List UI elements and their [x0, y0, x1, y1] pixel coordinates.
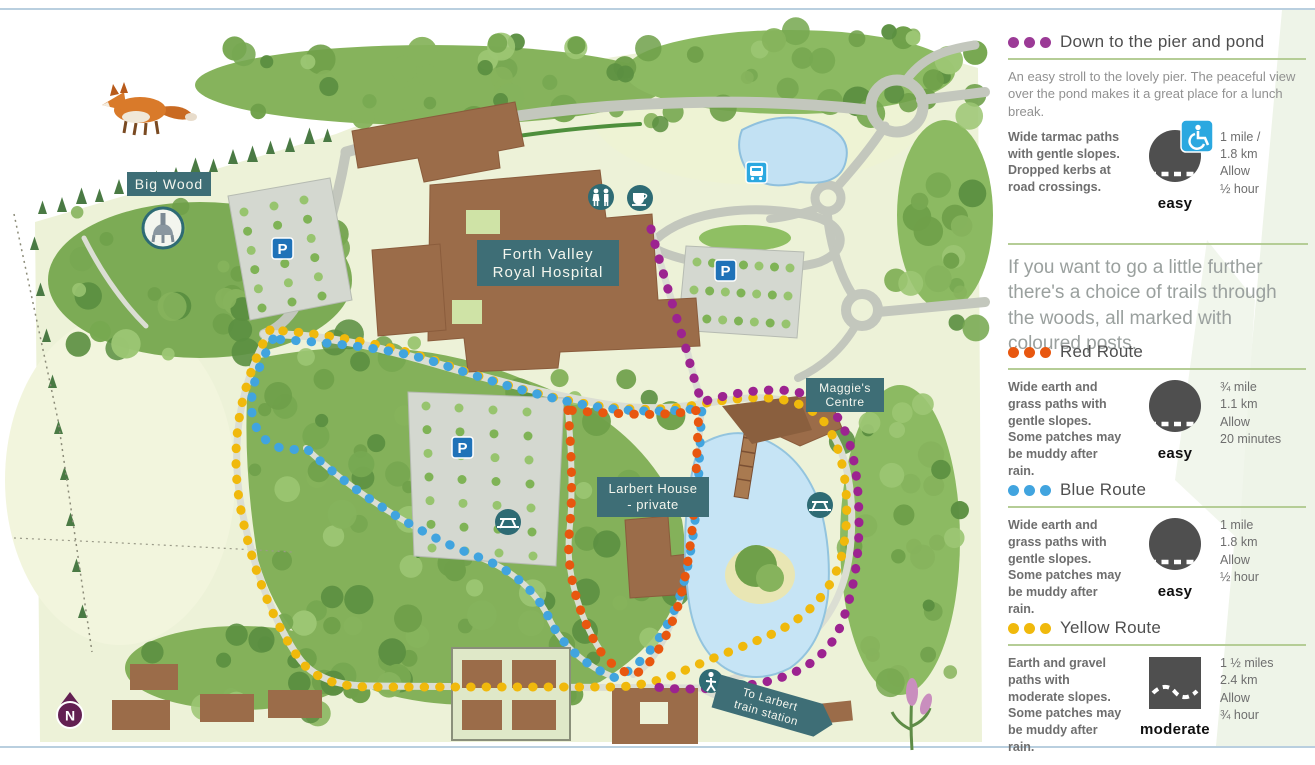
surface-description: Wide earth and grass paths with gentle s…	[1008, 379, 1130, 480]
difficulty-icon-easy-wheelchair: easy	[1130, 129, 1220, 212]
maggies-label-line1: Maggie's	[819, 381, 871, 395]
route-stats: ¾ mile1.1 km Allow20 minutes	[1220, 379, 1306, 480]
section-title: Blue Route	[1060, 480, 1146, 500]
surface-description: Wide earth and grass paths with gentle s…	[1008, 517, 1130, 618]
difficulty-label: easy	[1130, 445, 1220, 462]
legend-section-red: Red Route Wide earth and grass paths wit…	[1008, 342, 1306, 480]
legend-section-blue: Blue Route Wide earth and grass paths wi…	[1008, 480, 1306, 618]
interlude-text: If you want to go a little further there…	[1008, 243, 1308, 357]
section-title: Yellow Route	[1060, 618, 1161, 638]
difficulty-label: easy	[1130, 195, 1220, 212]
hospital-label-line2: Royal Hospital	[493, 264, 604, 281]
route-stats: 1 mile /1.8 km Allow½ hour	[1220, 129, 1306, 212]
route-stats: 1 mile1.8 km Allow½ hour	[1220, 517, 1306, 618]
difficulty-icon-moderate: moderate	[1130, 655, 1220, 756]
section-title: Red Route	[1060, 342, 1143, 362]
legend-section-yellow: Yellow Route Earth and gravel paths with…	[1008, 618, 1306, 756]
map-illustration: N P P P Big Wood Forth Valley Royal Hosp…	[0, 0, 1010, 765]
parking-sign-label: P	[277, 241, 287, 258]
wheelchair-icon	[1180, 119, 1214, 153]
fox-illustration	[102, 82, 197, 135]
hospital-label-line1: Forth Valley	[503, 246, 594, 263]
section-intro: An easy stroll to the lovely pier. The p…	[1008, 68, 1306, 120]
route-dots	[1008, 623, 1051, 634]
legend-section-pier: Down to the pier and pond An easy stroll…	[1008, 32, 1306, 212]
compass-n-label: N	[65, 708, 75, 724]
route-stats: 1 ½ miles2.4 km Allow¾ hour	[1220, 655, 1306, 756]
maggies-label-line2: Centre	[825, 395, 864, 409]
route-dots	[1008, 37, 1051, 48]
route-dots	[1008, 347, 1051, 358]
surface-description: Wide tarmac paths with gentle slopes. Dr…	[1008, 129, 1130, 212]
section-title: Down to the pier and pond	[1060, 32, 1264, 52]
roman-helmet-icon	[143, 208, 183, 248]
difficulty-label: moderate	[1130, 721, 1220, 738]
difficulty-label: easy	[1130, 583, 1220, 600]
route-dots	[1008, 485, 1051, 496]
cafe-icon	[627, 185, 653, 211]
difficulty-icon-easy: easy	[1130, 517, 1220, 618]
big-wood-label: Big Wood	[135, 176, 203, 192]
parking-sign-label: P	[457, 440, 467, 457]
toilets-icon	[588, 184, 614, 210]
larbert-label-line1: Larbert House	[609, 481, 698, 496]
surface-description: Earth and gravel paths with moderate slo…	[1008, 655, 1130, 756]
larbert-label-line2: - private	[627, 497, 678, 512]
parking-sign-label: P	[720, 263, 730, 280]
difficulty-icon-easy: easy	[1130, 379, 1220, 480]
bus-stop-icon	[746, 162, 767, 183]
